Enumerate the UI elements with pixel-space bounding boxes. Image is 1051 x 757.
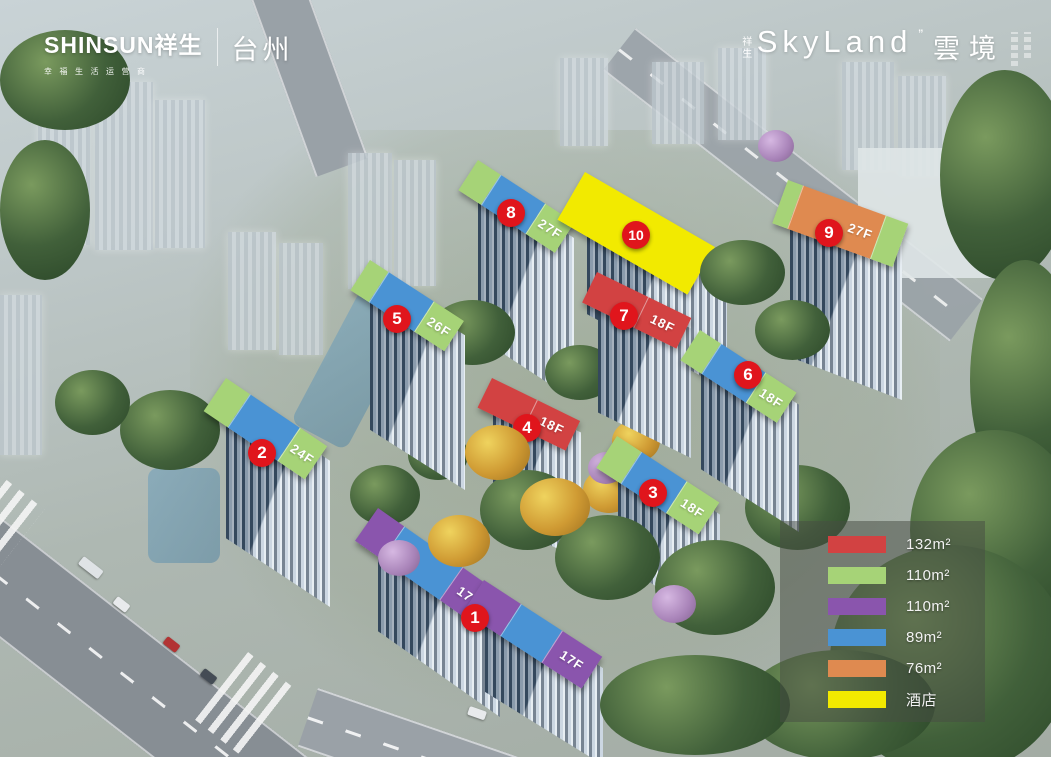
trees (120, 390, 220, 470)
legend-item: 89m² (828, 629, 985, 646)
legend-swatch-blue (828, 629, 886, 646)
header-left: SHINSUN祥生 幸福生活运营商 台州 (44, 26, 294, 77)
autumn-tree (465, 425, 530, 480)
legend-label: 110m² (906, 598, 950, 615)
seal-text-column (1011, 32, 1018, 66)
header-right: 祥生 SkyLand ” 雲境 (740, 24, 1031, 66)
blossom-tree (652, 585, 696, 623)
background-building (652, 62, 704, 144)
legend-item: 110m² (828, 598, 985, 615)
trees (55, 370, 130, 435)
background-building (394, 160, 436, 286)
legend-panel: 132m² 110m² 110m² 89m² 76m² 酒店 (780, 521, 985, 722)
background-building (228, 232, 276, 350)
legend-label: 酒店 (906, 689, 937, 710)
background-building (279, 243, 323, 355)
project-logo: SkyLand (757, 24, 913, 60)
legend-item: 132m² (828, 536, 985, 553)
legend-swatch-yellow (828, 691, 886, 708)
trees (700, 240, 785, 305)
legend-swatch-orange (828, 660, 886, 677)
legend-item: 110m² (828, 567, 985, 584)
header-divider (217, 28, 218, 66)
trees (408, 430, 468, 480)
background-building (155, 100, 205, 248)
legend-swatch-red (828, 536, 886, 553)
trees (350, 465, 420, 525)
background-building (348, 153, 392, 289)
trees (545, 345, 615, 400)
blossom-tree (378, 540, 420, 576)
aerial-site-plan: 27F 8 10 27F 9 26F 5 18F (0, 0, 1051, 757)
brand-tagline: 幸福生活运营商 (44, 66, 203, 77)
autumn-tree (612, 420, 660, 462)
legend-label: 76m² (906, 660, 942, 677)
background-building (560, 58, 608, 146)
trees (0, 140, 90, 280)
trademark-mark: ” (918, 26, 923, 42)
brand-logo: SHINSUN祥生 (44, 26, 203, 60)
blossom-tree (758, 130, 794, 162)
blossom-tree (588, 452, 624, 484)
seal-text-column (1024, 32, 1031, 58)
brand-block: SHINSUN祥生 幸福生活运营商 (44, 26, 203, 77)
pond (148, 468, 220, 563)
legend-swatch-green (828, 567, 886, 584)
autumn-tree (520, 478, 590, 536)
legend-label: 110m² (906, 567, 950, 584)
background-building (0, 295, 42, 455)
legend-label: 89m² (906, 629, 942, 646)
legend-item: 酒店 (828, 691, 985, 708)
autumn-tree (428, 515, 490, 567)
legend-swatch-purple (828, 598, 886, 615)
legend-item: 76m² (828, 660, 985, 677)
legend-label: 132m² (906, 536, 951, 553)
project-prefix: 祥生 (740, 36, 751, 60)
vehicle (78, 556, 104, 579)
city-label: 台州 (232, 28, 294, 67)
trees (755, 300, 830, 360)
project-name-cn: 雲境 (933, 27, 1005, 66)
vehicle (557, 712, 577, 726)
trees (600, 655, 790, 755)
trees (430, 300, 515, 365)
